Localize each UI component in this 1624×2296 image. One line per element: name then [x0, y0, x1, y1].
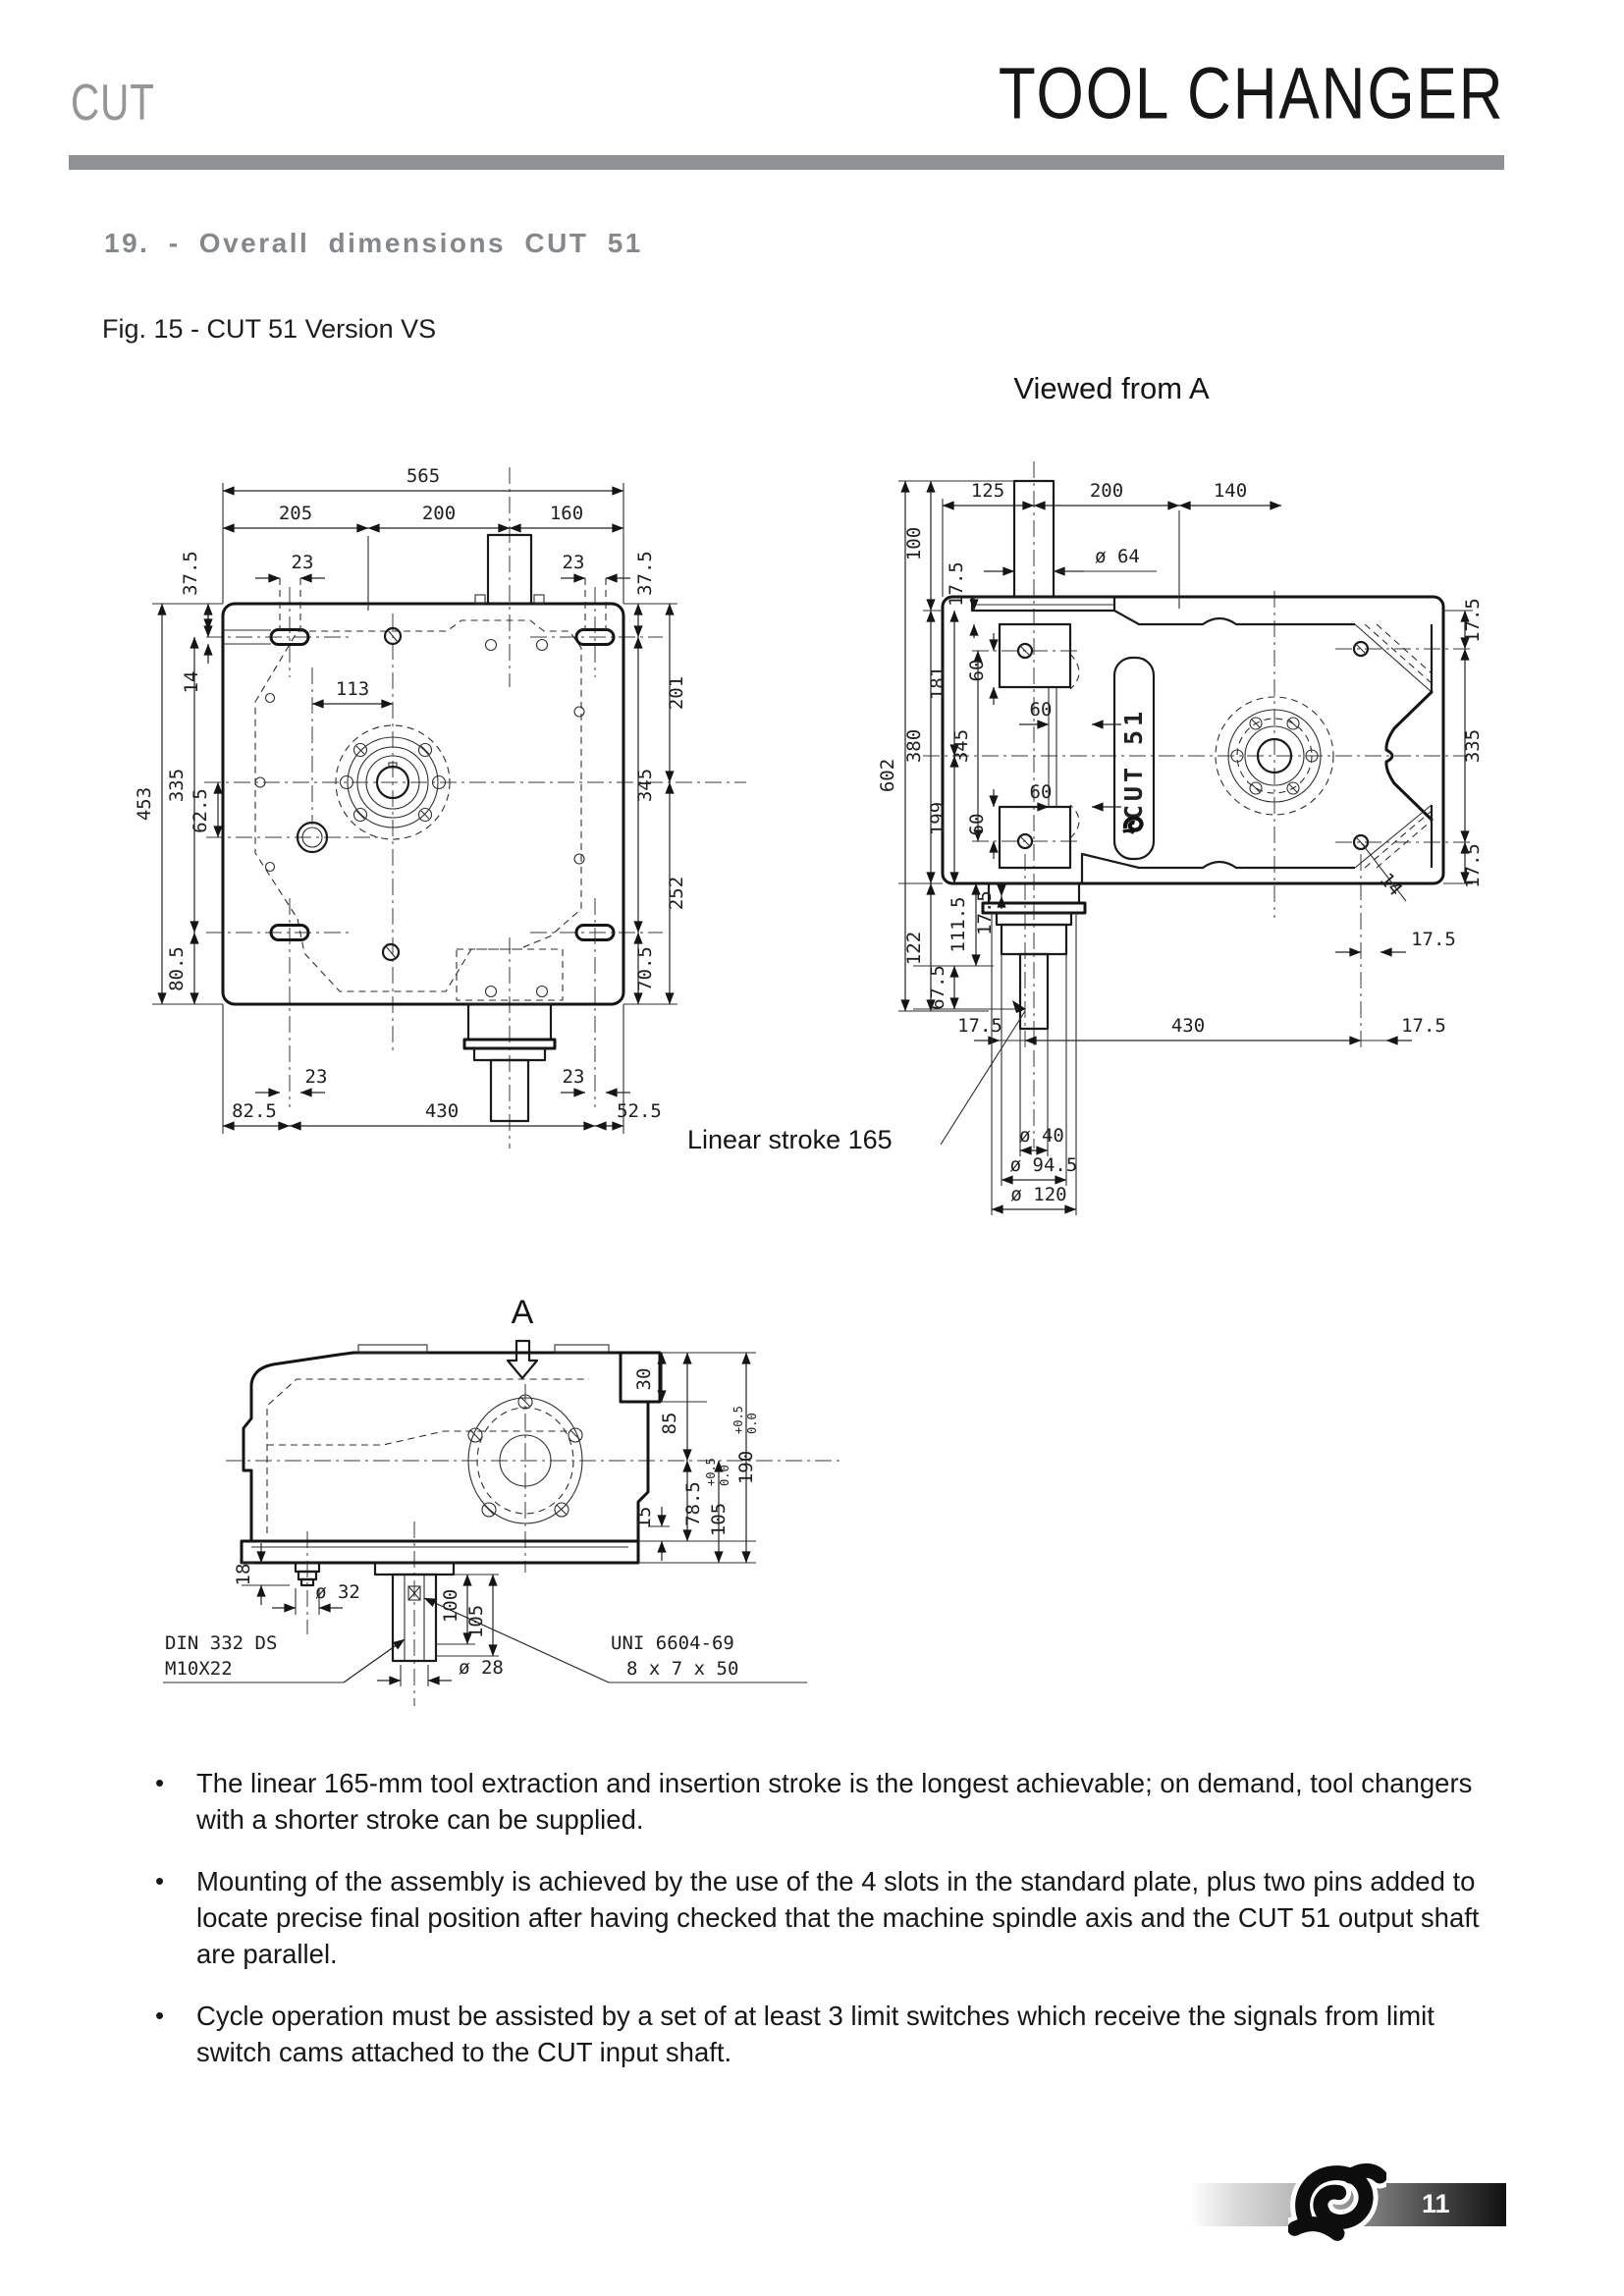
dim-front-bottom-edge-l: 17.5: [957, 1015, 1002, 1037]
dim-shaft-dia: ø 64: [1095, 546, 1140, 567]
dim-right-lower: 252: [666, 877, 687, 910]
list-item: • Cycle operation must be assisted by a …: [147, 1998, 1512, 2070]
center-drill-std-line2: M10X22: [165, 1658, 233, 1680]
manual-page: CUT TOOL CHANGER 19. - Overall dimension…: [0, 0, 1624, 2296]
dim-stroke-h: 67.5: [927, 965, 948, 1010]
dim-edge-brh: 17.5: [1411, 929, 1456, 950]
bullet-icon: •: [155, 1998, 164, 2034]
dim-upper: 181: [927, 667, 948, 700]
dim-holes-span: 345: [950, 729, 972, 763]
dim-edge-top-l: 37.5: [180, 551, 201, 596]
dim-overall-width: 565: [406, 465, 440, 487]
dim-side-plate-tol-hi: +0.5: [704, 1458, 718, 1486]
dim-side-block: 30: [633, 1368, 655, 1391]
dim-edge-bottom: 80.5: [166, 946, 188, 991]
dim-side-lower: 78.5: [682, 1481, 704, 1526]
dim-pin-offset: 62.5: [189, 788, 211, 833]
dim-right-span: 345: [634, 769, 656, 802]
dim-side-step: 15: [633, 1507, 655, 1529]
note-text: Mounting of the assembly is achieved by …: [196, 1866, 1480, 1969]
bullet-icon: •: [155, 1765, 164, 1801]
dim-slot-bl: 60: [966, 814, 988, 836]
dim-slot-pitch-bl: 23: [305, 1066, 328, 1088]
list-item: • The linear 165-mm tool extraction and …: [147, 1765, 1512, 1838]
dim-slot-pitch-tr: 23: [563, 552, 585, 573]
technical-drawing: Viewed from A: [59, 363, 1561, 1757]
dim-out-dia1: ø 40: [1019, 1125, 1064, 1147]
dim-slot-pitch-br: 23: [563, 1066, 585, 1088]
notes-list: • The linear 165-mm tool extraction and …: [147, 1765, 1512, 2096]
dim-side-shaft-dia: ø 28: [459, 1657, 504, 1679]
figure-caption: Fig. 15 - CUT 51 Version VS: [102, 314, 436, 345]
brand-knot-icon: [1288, 2152, 1386, 2250]
list-item: • Mounting of the assembly is achieved b…: [147, 1863, 1512, 1972]
dim-side-plate-tol-lo: 0.0: [718, 1465, 731, 1486]
dim-bottom-left: 82.5: [232, 1100, 277, 1122]
dim-bottom-right: 52.5: [617, 1100, 662, 1122]
dim-total-h: 602: [877, 759, 898, 792]
dim-flange-offset: 113: [336, 678, 369, 700]
dim-side-upper: 85: [659, 1413, 680, 1435]
dim-bottom-span: 430: [425, 1100, 459, 1122]
header-rule: [69, 155, 1504, 170]
dim-side-stud: 18: [233, 1564, 254, 1586]
dim-front-seg-left: 125: [971, 480, 1004, 502]
dim-side-key-len: 100: [440, 1589, 461, 1623]
section-heading: 19. - Overall dimensions CUT 51: [104, 228, 643, 259]
dim-seg-mid: 200: [422, 503, 456, 524]
dim-overall-height: 453: [134, 787, 155, 821]
side-view: A: [163, 1294, 844, 1706]
dim-bottom-h: 122: [903, 932, 925, 965]
dim-edge-bl: 17.5: [974, 890, 996, 935]
dim-slots-span-v: 335: [166, 769, 188, 802]
dim-out-dia2: ø 94.5: [1010, 1154, 1078, 1176]
view-direction-label: A: [512, 1294, 534, 1331]
dim-out-dia3: ø 120: [1010, 1184, 1066, 1205]
dim-front-seg-right: 140: [1214, 480, 1247, 502]
linear-stroke-note: Linear stroke 165: [687, 1125, 893, 1154]
dim-side-total: 190: [735, 1451, 757, 1484]
dim-slot-pitch-tl: 23: [292, 552, 314, 573]
brand-name: CUT: [71, 75, 155, 133]
dim-edge-top-r: 37.5: [634, 551, 656, 596]
dim-seg-right: 160: [550, 503, 583, 524]
dim-side-stud-dia: ø 32: [315, 1581, 360, 1603]
dim-front-seg-mid: 200: [1090, 480, 1123, 502]
dim-front-bottom-edge-r: 17.5: [1401, 1015, 1446, 1037]
dim-body-h: 380: [903, 729, 925, 763]
dim-front-bottom-span: 430: [1171, 1015, 1205, 1037]
dim-bottom-inner: 111.5: [947, 896, 969, 952]
note-text: The linear 165-mm tool extraction and in…: [196, 1768, 1472, 1835]
note-text: Cycle operation must be assisted by a se…: [196, 2001, 1435, 2067]
nameplate-text: CUT 51: [1119, 708, 1148, 820]
dim-slot-bh: 60: [1030, 781, 1053, 803]
dim-slot-tl: 60: [966, 660, 988, 682]
dim-slot-width: 14: [181, 671, 202, 694]
dim-side-total-tol-lo: 0.0: [745, 1413, 759, 1434]
dim-edge-tl: 17.5: [946, 561, 967, 607]
dim-edge-br: 17.5: [1462, 843, 1484, 888]
dim-right-edge-bottom: 70.5: [634, 946, 656, 991]
view-direction-title: Viewed from A: [1013, 371, 1210, 405]
key-std-line1: UNI 6604-69: [611, 1632, 734, 1654]
dim-lower: 199: [927, 802, 948, 835]
dim-side-plate: 105: [708, 1503, 730, 1536]
dim-right-span: 335: [1462, 729, 1484, 763]
dim-seg-left: 205: [279, 503, 312, 524]
key-std-line2: 8 x 7 x 50: [626, 1658, 738, 1680]
dim-slot-th: 60: [1030, 699, 1053, 721]
view-direction-arrow-icon: [508, 1341, 537, 1378]
page-title: TOOL CHANGER: [998, 51, 1504, 134]
bullet-icon: •: [155, 1863, 164, 1899]
plan-view: 565 205 200 160 23 23 37.5 37.5: [134, 465, 746, 1148]
dim-shaft-h: 100: [903, 527, 925, 561]
dim-edge-tr: 17.5: [1462, 598, 1484, 643]
dim-right-upper: 201: [666, 676, 687, 710]
page-number: 11: [1422, 2189, 1450, 2219]
center-drill-std-line1: DIN 332 DS: [165, 1632, 277, 1654]
dim-side-total-tol-hi: +0.5: [731, 1406, 745, 1434]
front-view: CUT 51: [687, 461, 1484, 1215]
